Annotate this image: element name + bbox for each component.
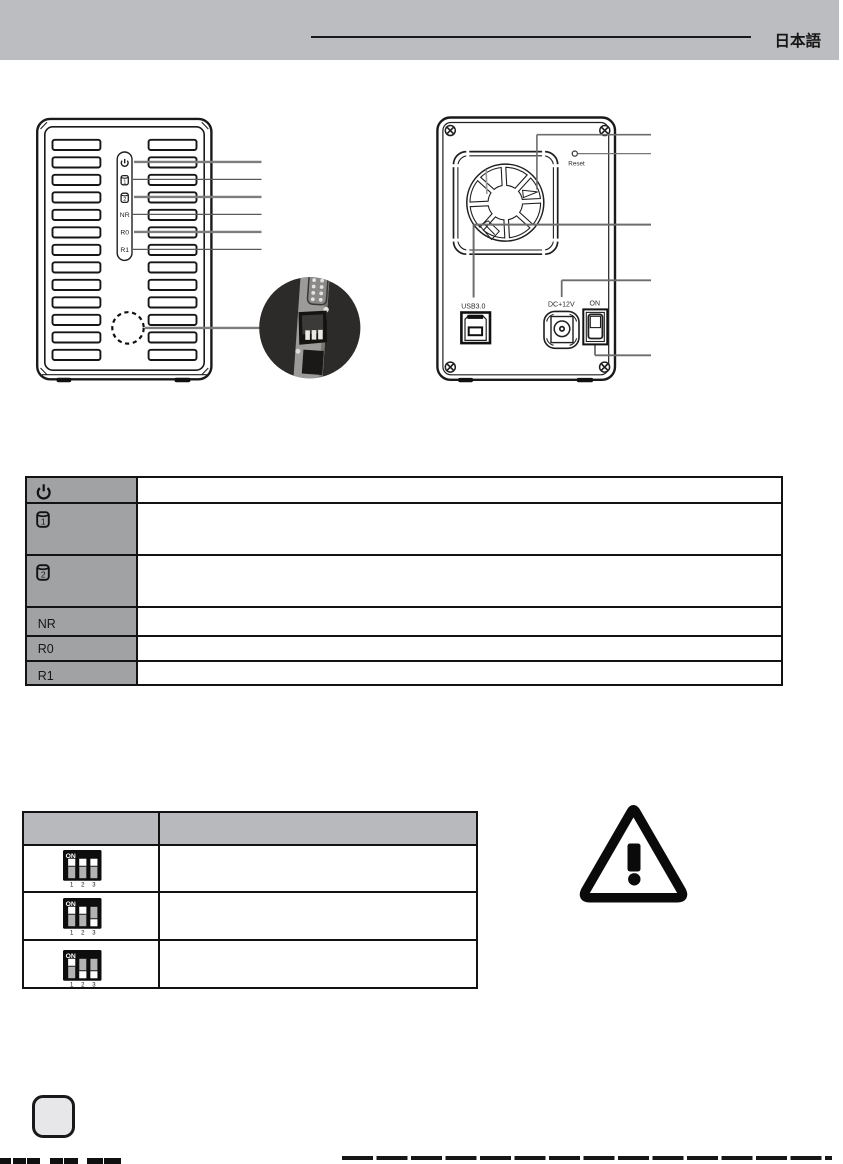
svg-text:2: 2 xyxy=(123,197,126,203)
svg-text:2: 2 xyxy=(81,982,85,987)
svg-text:R0: R0 xyxy=(120,230,129,237)
svg-text:1: 1 xyxy=(70,982,74,987)
svg-text:R1: R1 xyxy=(120,247,129,254)
svg-text:3: 3 xyxy=(92,882,96,887)
svg-text:Reset: Reset xyxy=(568,161,585,168)
svg-text:3: 3 xyxy=(92,982,96,987)
svg-text:2: 2 xyxy=(81,930,85,935)
svg-text:USB3.0: USB3.0 xyxy=(461,304,485,311)
svg-text:1: 1 xyxy=(123,180,126,186)
svg-text:NR: NR xyxy=(120,212,130,219)
svg-text:2: 2 xyxy=(81,882,85,887)
svg-text:ON: ON xyxy=(590,301,601,308)
svg-text:1: 1 xyxy=(70,882,74,887)
svg-text:1: 1 xyxy=(41,516,46,526)
svg-text:1: 1 xyxy=(70,930,74,935)
svg-text:DC+12V: DC+12V xyxy=(548,302,575,309)
svg-text:2: 2 xyxy=(41,569,46,579)
svg-text:3: 3 xyxy=(92,930,96,935)
